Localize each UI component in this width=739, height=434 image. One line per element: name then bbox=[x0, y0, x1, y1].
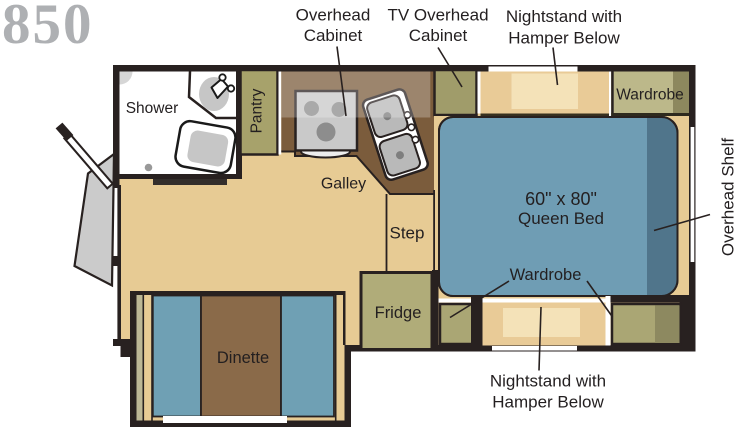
svg-text:Galley: Galley bbox=[321, 176, 366, 193]
svg-text:Pantry: Pantry bbox=[249, 88, 266, 133]
svg-text:Cabinet: Cabinet bbox=[304, 26, 363, 45]
svg-text:Nightstand with: Nightstand with bbox=[490, 372, 606, 391]
svg-text:Step: Step bbox=[390, 224, 425, 243]
svg-text:Dinette: Dinette bbox=[217, 349, 269, 367]
svg-text:Fridge: Fridge bbox=[375, 304, 422, 322]
svg-text:Nightstand with: Nightstand with bbox=[506, 7, 622, 26]
svg-text:Overhead: Overhead bbox=[296, 6, 371, 25]
svg-text:Wardrobe: Wardrobe bbox=[510, 266, 582, 284]
svg-text:850: 850 bbox=[2, 0, 94, 56]
svg-text:Hamper Below: Hamper Below bbox=[508, 29, 620, 48]
svg-text:Overhead Shelf: Overhead Shelf bbox=[719, 138, 738, 256]
svg-text:60" x 80": 60" x 80" bbox=[525, 189, 597, 209]
svg-text:TV Overhead: TV Overhead bbox=[387, 6, 488, 25]
svg-text:Hamper Below: Hamper Below bbox=[492, 393, 604, 412]
svg-text:Cabinet: Cabinet bbox=[409, 26, 468, 45]
svg-text:Wardrobe: Wardrobe bbox=[616, 87, 683, 104]
svg-text:Shower: Shower bbox=[126, 100, 179, 117]
svg-text:Queen Bed: Queen Bed bbox=[518, 209, 604, 228]
